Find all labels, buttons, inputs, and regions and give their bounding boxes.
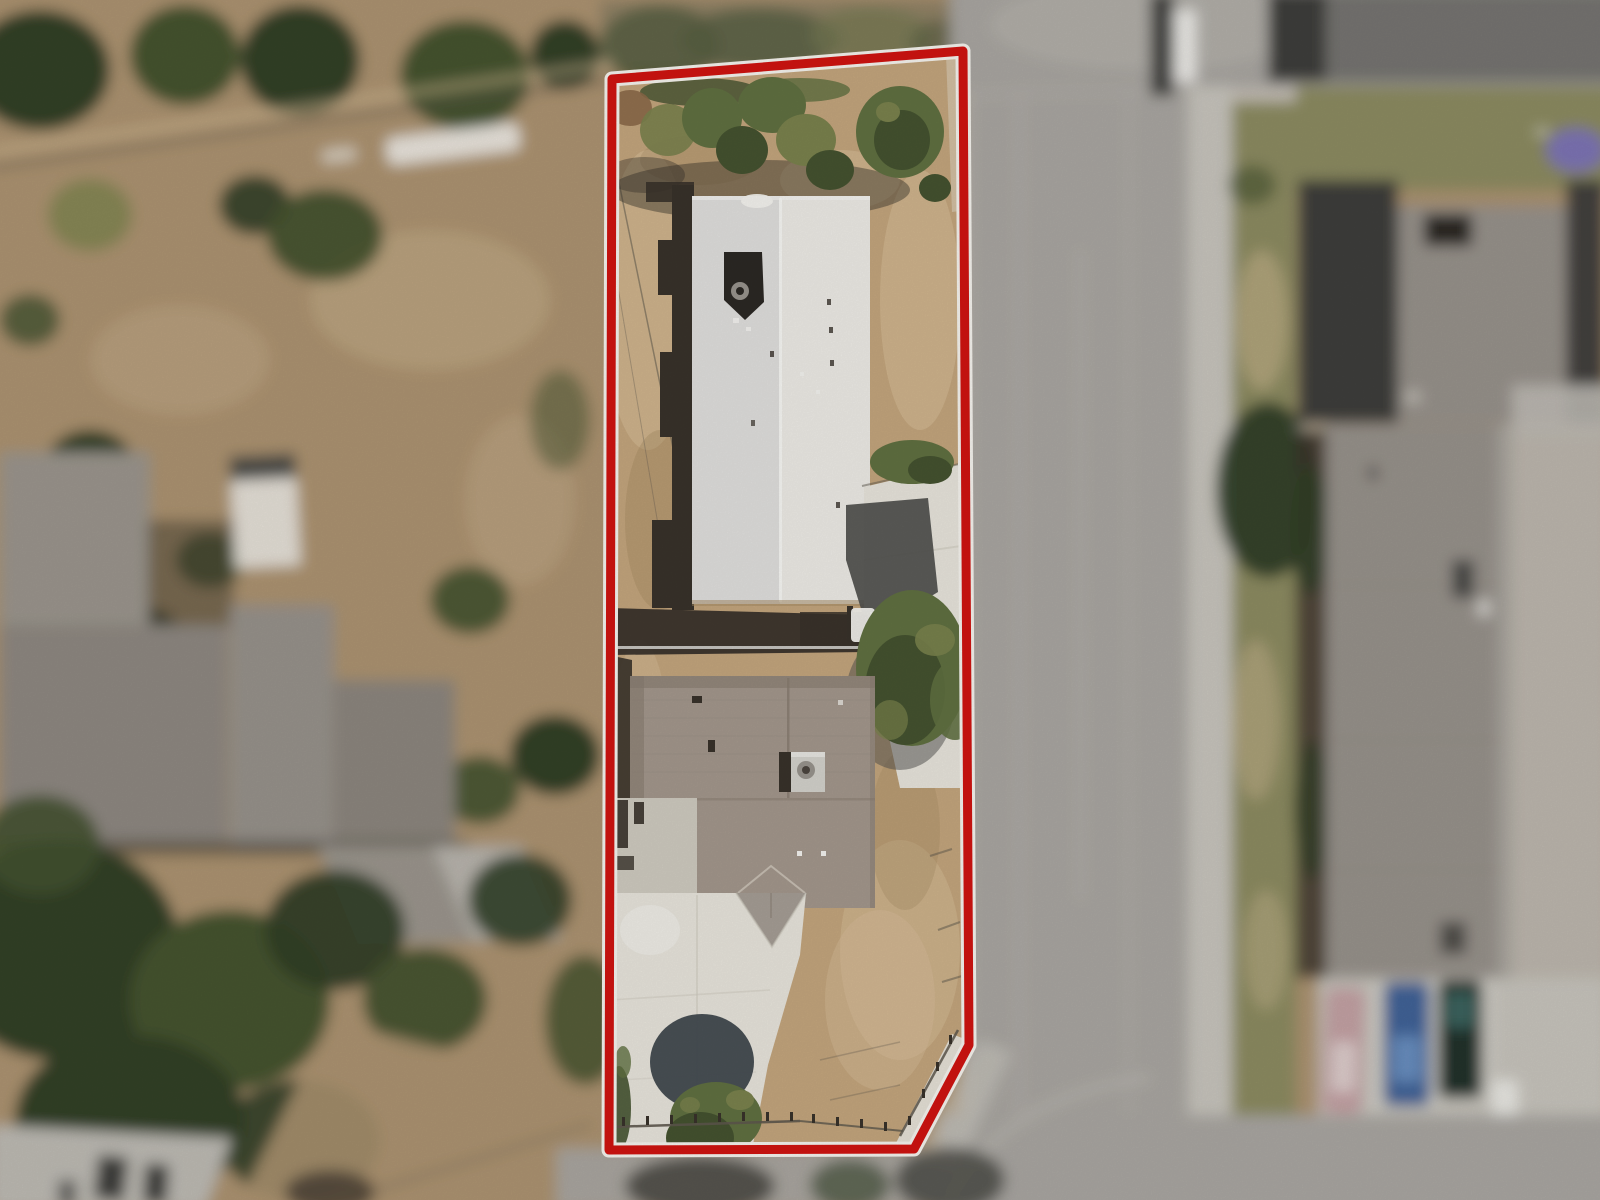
aerial-photo-stage <box>0 0 1600 1200</box>
photo-grain-overlay <box>0 0 1600 1200</box>
aerial-photo <box>0 0 1600 1200</box>
